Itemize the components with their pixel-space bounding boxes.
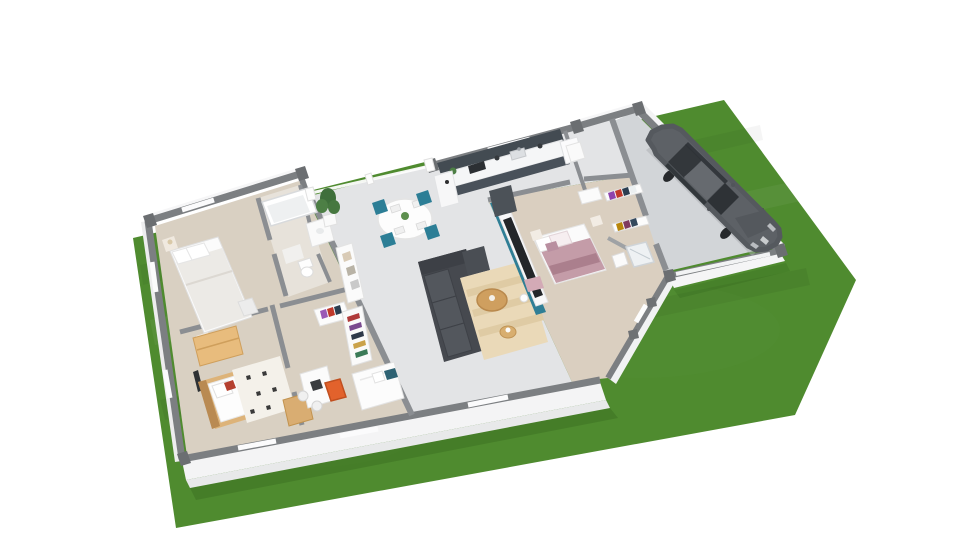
car-mirror-left [707, 207, 711, 211]
coffee-table-decor [489, 295, 495, 301]
toilet-bowl [301, 267, 313, 277]
office-chair-2 [312, 401, 322, 411]
front-door-post-2 [646, 297, 657, 308]
living-plant-pot [323, 213, 337, 227]
dining-centerpiece [401, 212, 409, 220]
kitchen-appliance-1 [495, 156, 500, 161]
car-mirror-right [731, 183, 735, 187]
kitchen-faucet [517, 147, 521, 151]
kitchen-bar-bottle [445, 180, 449, 184]
floorplan-render: 3D isometric rendering of a single-store… [0, 0, 960, 540]
living-plant-foliage-3 [328, 200, 340, 214]
living-plant-foliage-2 [316, 199, 328, 213]
bathroom-sink [316, 228, 324, 234]
bedroom1-lamp-1 [168, 240, 173, 245]
corner-post-nw-jog [295, 166, 309, 181]
kitchen-appliance-2 [538, 144, 543, 149]
floorplan-scene [0, 0, 960, 540]
front-door-post-1 [628, 329, 639, 340]
suite-floor-lamp [520, 294, 528, 302]
side-table-lamp [506, 328, 511, 333]
office-chair-1 [298, 391, 308, 401]
